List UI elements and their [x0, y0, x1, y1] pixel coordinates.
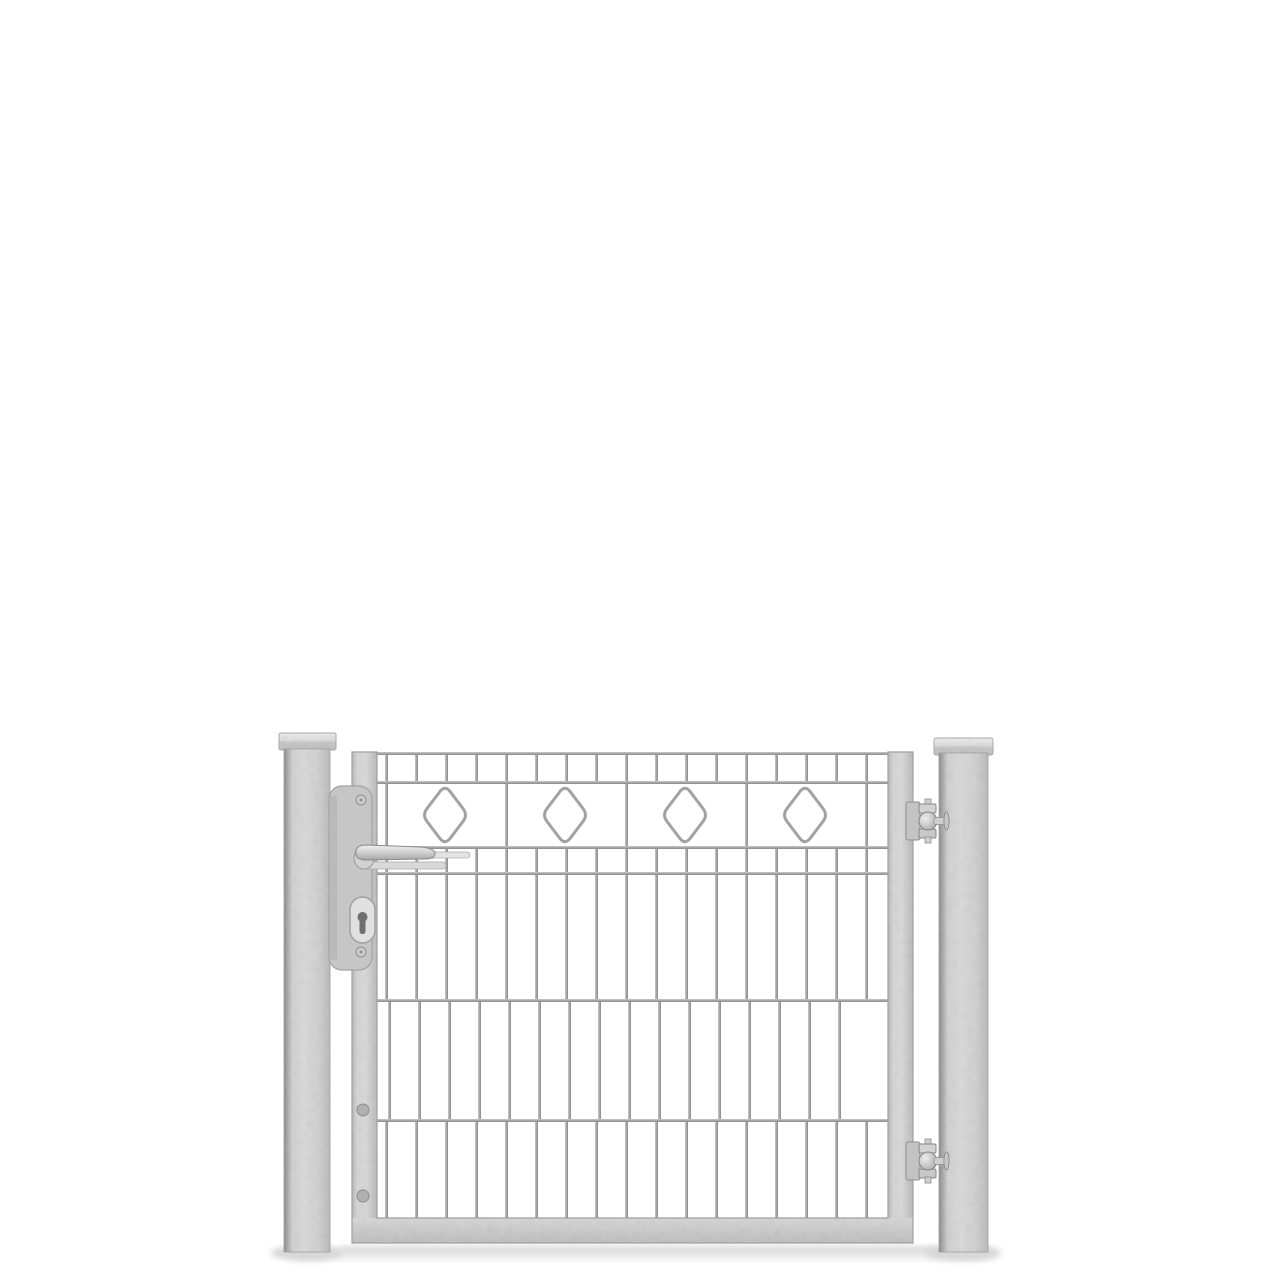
mesh-panel	[377, 752, 888, 1218]
ground-shadow	[271, 1245, 1001, 1261]
garden-gate-image	[0, 0, 1280, 1280]
lock-plate-edge	[329, 796, 337, 960]
diamond-ornament	[665, 788, 706, 841]
diamond-ornament	[425, 788, 466, 841]
keyhole-slot	[360, 917, 366, 934]
diamond-ornament	[545, 788, 586, 841]
vertical-wires	[385, 755, 868, 1218]
product-photo	[0, 0, 1280, 1280]
door-handle	[356, 845, 435, 860]
diamond-ornament	[785, 788, 826, 841]
